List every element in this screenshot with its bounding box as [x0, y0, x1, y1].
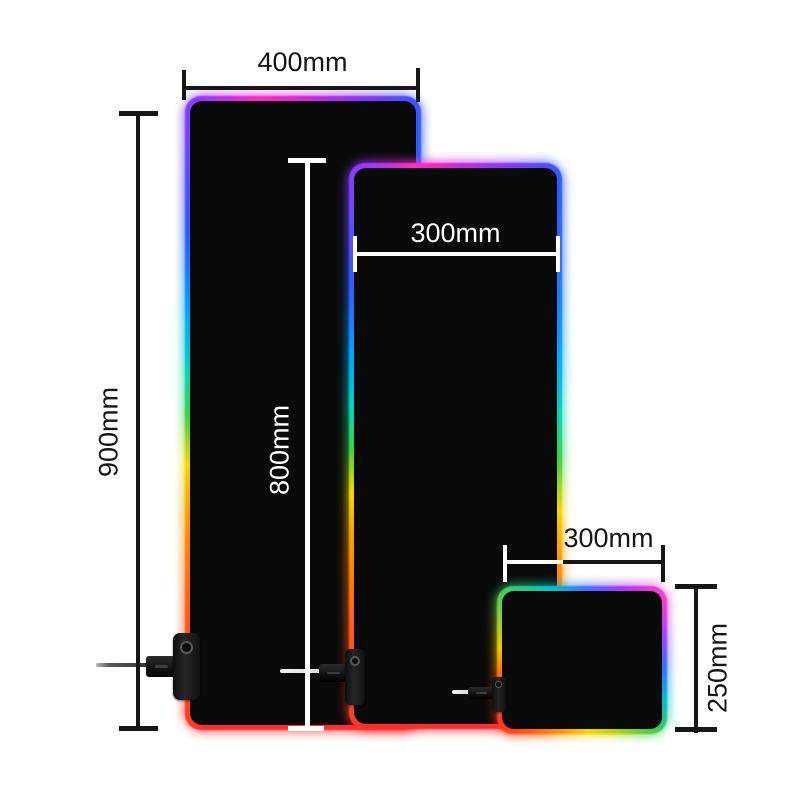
usb-cable-large: [96, 663, 148, 667]
dimension-line-large-height: [136, 112, 140, 730]
usb-plug-slot: [155, 665, 168, 668]
dimension-label-small-width: 300mm: [556, 522, 661, 554]
usb-cable-medium: [280, 669, 321, 673]
usb-plug-slot: [476, 692, 488, 694]
dimension-tick: [416, 68, 420, 102]
usb-plug-slot: [327, 672, 340, 675]
dimension-line-medium-height: [305, 159, 310, 731]
dimension-line-small-height: [694, 585, 698, 733]
pad-small: [497, 586, 667, 734]
dimension-cap: [119, 111, 158, 116]
pad-surface-small: [502, 591, 662, 729]
dimension-line-small-width: [563, 560, 664, 564]
brand-logo-icon: [350, 656, 360, 666]
dimension-cap: [119, 726, 158, 731]
dimension-tick: [182, 70, 186, 100]
dimension-tick: [503, 545, 507, 582]
brand-logo-icon: [495, 681, 502, 688]
dimension-tick: [556, 236, 560, 272]
dimension-tick: [661, 545, 665, 582]
usb-plug-large: [146, 656, 175, 677]
dimension-cap: [675, 727, 717, 732]
dimension-label-small-height: 250mm: [701, 620, 735, 715]
dimension-cap: [675, 584, 717, 589]
dimension-line-large-width: [183, 86, 420, 90]
dimension-tick: [353, 236, 357, 272]
dimension-line-small-width-overlap: [504, 560, 563, 564]
product-size-diagram: 400mm 900mm 800mm 300mm 300mm 250mm: [0, 0, 800, 800]
usb-plug-small: [468, 687, 494, 699]
usb-plug-medium: [319, 664, 347, 682]
dimension-label-medium-height: 800mm: [263, 398, 297, 502]
dimension-line-medium-width: [355, 252, 558, 256]
dimension-label-large-height: 900mm: [92, 380, 126, 484]
dimension-cap: [288, 158, 326, 163]
dimension-label-medium-width: 300mm: [403, 217, 508, 249]
dimension-cap: [288, 726, 324, 731]
brand-logo-icon: [180, 641, 193, 654]
dimension-label-large-width: 400mm: [245, 46, 360, 78]
